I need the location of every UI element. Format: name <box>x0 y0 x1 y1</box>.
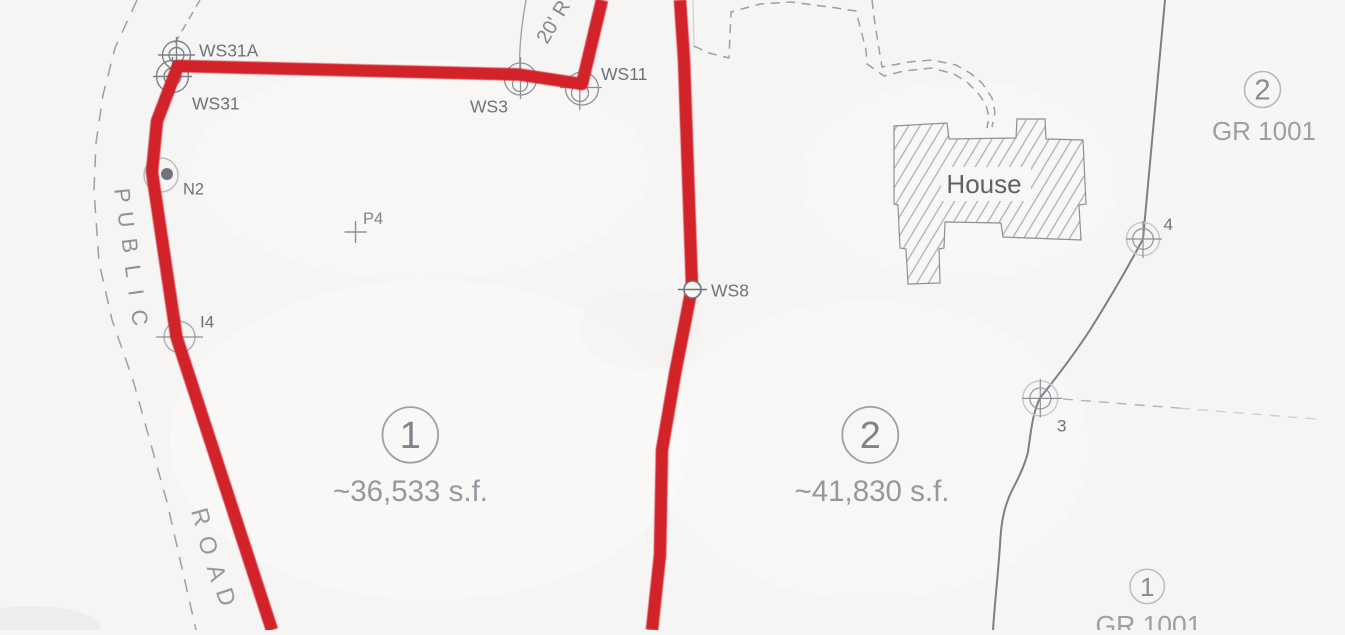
svg-text:1: 1 <box>1140 572 1154 602</box>
svg-text:GR 1001: GR 1001 <box>1212 116 1316 146</box>
svg-text:WS8: WS8 <box>711 281 749 301</box>
svg-text:3: 3 <box>1057 417 1066 436</box>
svg-text:WS11: WS11 <box>601 64 647 84</box>
svg-text:I4: I4 <box>200 313 214 332</box>
svg-text:WS31A: WS31A <box>199 41 259 61</box>
svg-text:B: B <box>117 237 144 255</box>
svg-text:~41,830 s.f.: ~41,830 s.f. <box>795 475 950 508</box>
svg-text:WS3: WS3 <box>470 97 508 117</box>
svg-text:WS31: WS31 <box>192 94 240 114</box>
svg-text:4: 4 <box>1164 215 1173 234</box>
svg-text:GR 1001: GR 1001 <box>1095 611 1201 631</box>
svg-text:2: 2 <box>1254 75 1270 107</box>
svg-text:U: U <box>113 210 140 228</box>
svg-text:House: House <box>946 169 1021 199</box>
svg-text:P: P <box>109 187 135 204</box>
svg-text:~36,533 s.f.: ~36,533 s.f. <box>333 475 488 508</box>
svg-text:2: 2 <box>860 415 881 457</box>
svg-text:P4: P4 <box>363 210 383 228</box>
svg-text:N2: N2 <box>183 181 204 199</box>
svg-text:1: 1 <box>400 415 421 457</box>
